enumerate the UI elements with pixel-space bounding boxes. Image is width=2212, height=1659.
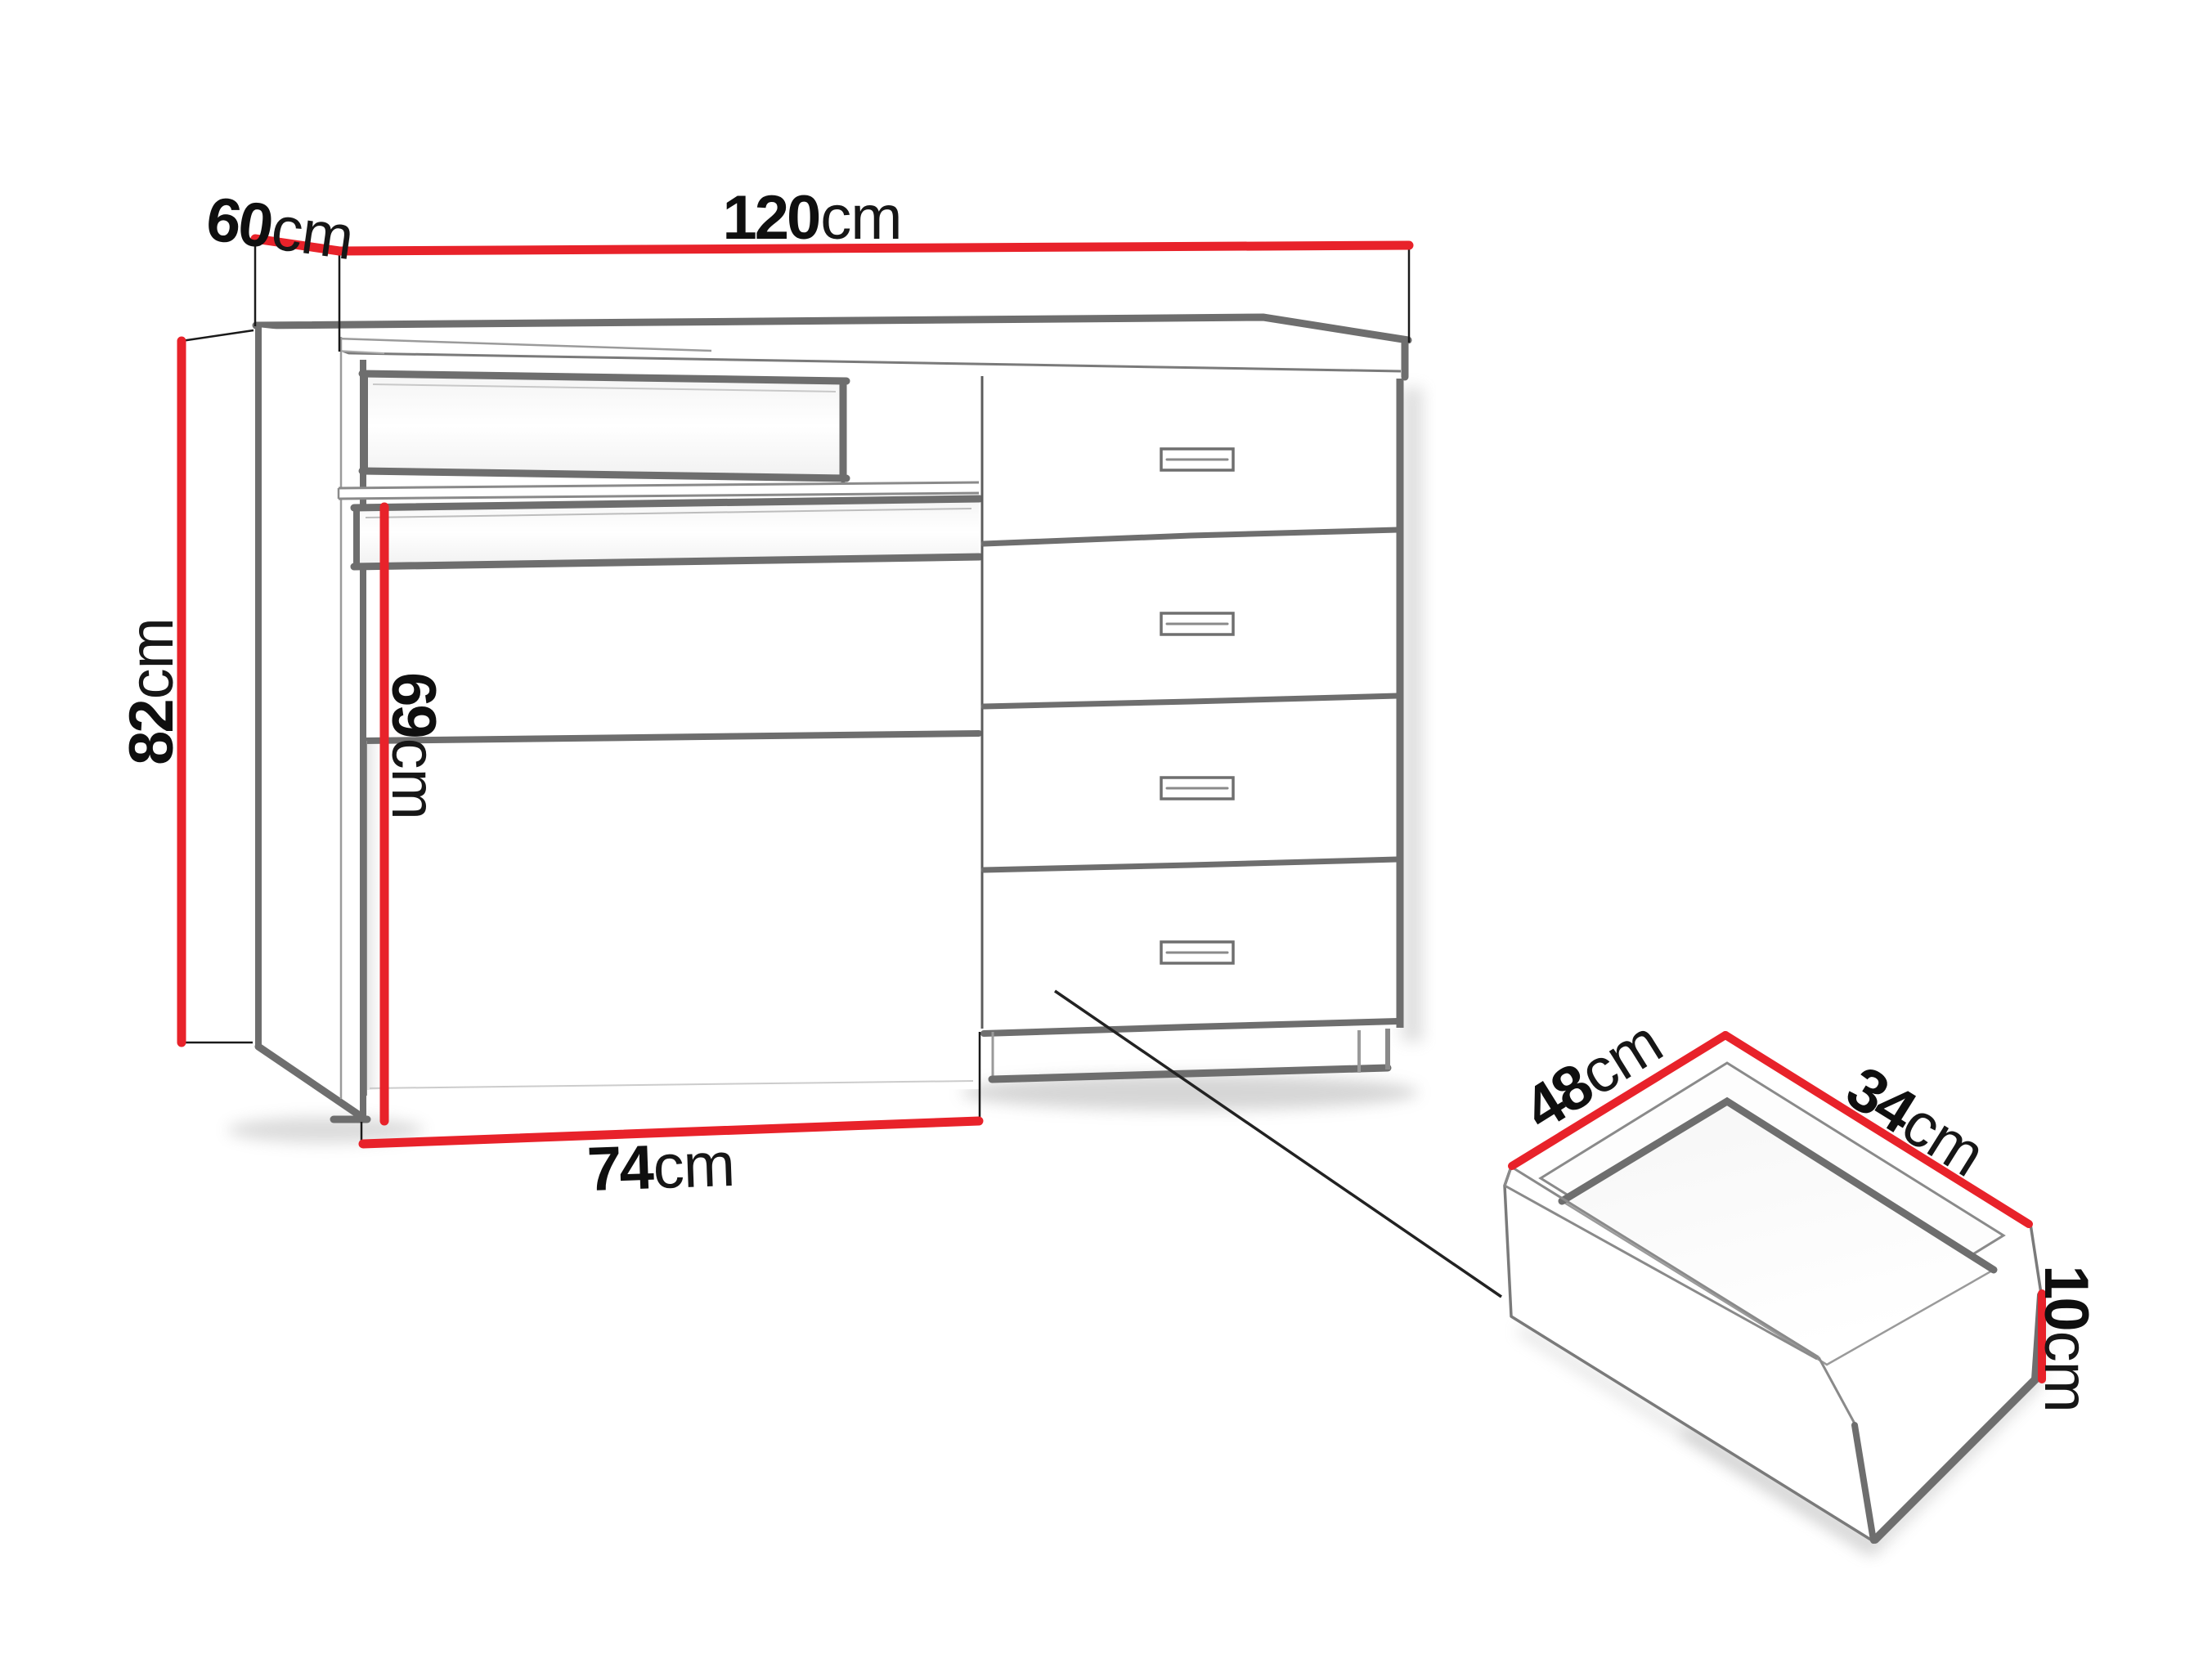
desk-niche — [362, 374, 846, 479]
label-drawer-height: 10cm — [2035, 1265, 2097, 1412]
desk-top — [256, 317, 1408, 377]
label-desk-clearance: 69cm — [382, 672, 444, 819]
label-desk-height: 82cm — [121, 618, 183, 765]
drawer-handle — [1161, 778, 1233, 799]
dimension-diagram: 60cm 120cm 82cm 69cm 74cm 48cm 34cm 10cm — [0, 0, 2212, 1659]
desk-tray-front — [354, 498, 980, 568]
drawer-handle — [1161, 942, 1233, 963]
drawer-unit-plinth — [992, 1029, 1388, 1079]
desk-back-panel — [364, 731, 980, 1096]
desk-drawer-unit — [984, 376, 1400, 1079]
label-desk-base-width: 74cm — [586, 1134, 735, 1201]
desk-pullout-shelf — [339, 482, 979, 499]
desk-left-panel — [258, 327, 367, 1119]
label-desk-width: 120cm — [722, 187, 901, 249]
extension-line — [182, 330, 254, 341]
drawer-handle — [1161, 449, 1233, 470]
drawer-handle — [1161, 613, 1233, 634]
drawer-pointer-line — [1055, 991, 1501, 1297]
